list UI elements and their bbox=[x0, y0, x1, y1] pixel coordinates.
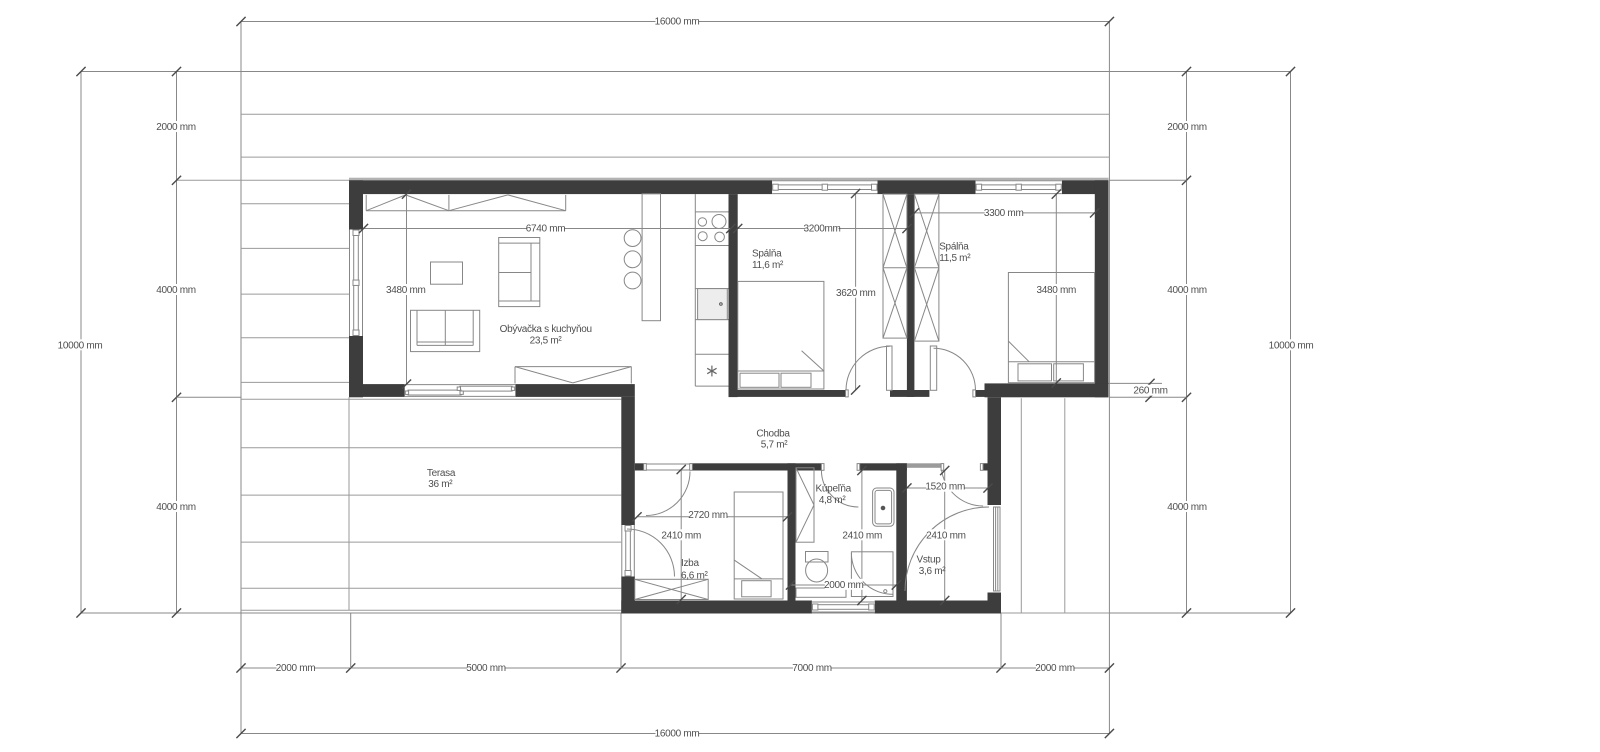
svg-text:2000 mm: 2000 mm bbox=[276, 663, 316, 674]
svg-text:260 mm: 260 mm bbox=[1133, 386, 1167, 397]
svg-text:3620 mm: 3620 mm bbox=[836, 288, 876, 299]
svg-text:2000 mm: 2000 mm bbox=[156, 122, 196, 133]
svg-text:3480 mm: 3480 mm bbox=[1037, 285, 1077, 296]
svg-text:Izba: Izba bbox=[681, 558, 699, 569]
svg-text:Chodba: Chodba bbox=[756, 429, 790, 440]
svg-text:2410 mm: 2410 mm bbox=[842, 530, 882, 541]
svg-text:6,6 m²: 6,6 m² bbox=[681, 570, 709, 581]
svg-text:Spálňa: Spálňa bbox=[939, 242, 969, 253]
svg-text:3200mm: 3200mm bbox=[803, 224, 840, 235]
svg-text:2410 mm: 2410 mm bbox=[661, 530, 701, 541]
svg-text:5,7 m²: 5,7 m² bbox=[761, 440, 789, 451]
svg-text:16000 mm: 16000 mm bbox=[655, 16, 700, 27]
svg-text:2000 mm: 2000 mm bbox=[824, 580, 864, 591]
svg-text:Vstup: Vstup bbox=[916, 555, 941, 566]
svg-text:Obývačka s kuchyňou: Obývačka s kuchyňou bbox=[500, 324, 592, 335]
svg-text:11,5 m²: 11,5 m² bbox=[939, 253, 971, 264]
svg-text:4000 mm: 4000 mm bbox=[1167, 285, 1207, 296]
svg-text:36 m²: 36 m² bbox=[428, 479, 453, 490]
svg-text:4,8 m²: 4,8 m² bbox=[819, 495, 847, 506]
svg-text:2000 mm: 2000 mm bbox=[1035, 663, 1075, 674]
svg-text:23,5 m²: 23,5 m² bbox=[530, 335, 563, 346]
svg-text:10000 mm: 10000 mm bbox=[1269, 340, 1314, 351]
svg-text:3,6 m²: 3,6 m² bbox=[919, 566, 947, 577]
svg-text:10000 mm: 10000 mm bbox=[58, 340, 103, 351]
svg-text:6740 mm: 6740 mm bbox=[526, 224, 566, 235]
svg-text:3300 mm: 3300 mm bbox=[984, 208, 1024, 219]
svg-text:3480 mm: 3480 mm bbox=[386, 285, 426, 296]
svg-text:2000 mm: 2000 mm bbox=[1167, 122, 1207, 133]
svg-text:4000 mm: 4000 mm bbox=[156, 285, 196, 296]
svg-text:5000 mm: 5000 mm bbox=[466, 663, 506, 674]
svg-text:Kúpeľňa: Kúpeľňa bbox=[816, 484, 852, 495]
svg-text:2720 mm: 2720 mm bbox=[688, 510, 728, 521]
svg-text:7000 mm: 7000 mm bbox=[792, 663, 832, 674]
svg-text:16000 mm: 16000 mm bbox=[655, 728, 700, 739]
svg-text:2410 mm: 2410 mm bbox=[926, 530, 966, 541]
svg-text:Spálňa: Spálňa bbox=[752, 248, 782, 259]
svg-text:4000 mm: 4000 mm bbox=[1167, 502, 1207, 513]
svg-text:Terasa: Terasa bbox=[427, 468, 456, 479]
svg-text:11,6 m²: 11,6 m² bbox=[752, 260, 784, 271]
svg-text:1520 mm: 1520 mm bbox=[925, 482, 965, 493]
svg-text:4000 mm: 4000 mm bbox=[156, 502, 196, 513]
